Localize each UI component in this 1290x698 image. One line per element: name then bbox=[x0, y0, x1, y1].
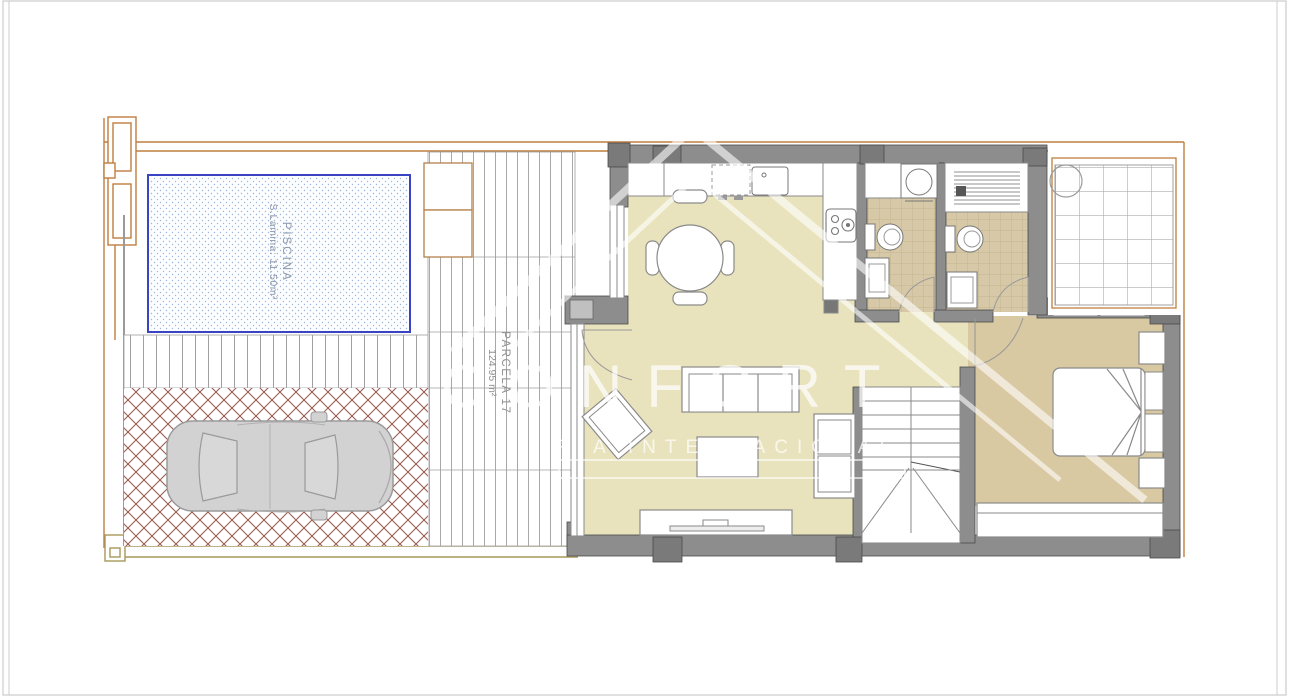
car bbox=[167, 412, 393, 520]
floor-plan-page: PISCINA S.Lamina: 11.50m² PARCELA 17 124… bbox=[0, 0, 1290, 698]
watermark-tagline: RIA INTERNACIONAL bbox=[556, 437, 899, 459]
pool-label: PISCINA S.Lamina: 11.50m² bbox=[265, 167, 293, 337]
floor-plan-drawing bbox=[0, 0, 1290, 698]
gate bbox=[104, 117, 136, 245]
toilet2 bbox=[945, 226, 955, 252]
nightstand-bottom bbox=[1139, 458, 1165, 488]
terrace bbox=[1048, 152, 1183, 315]
toilet1 bbox=[865, 224, 875, 250]
wardrobe bbox=[977, 503, 1163, 537]
tv-unit bbox=[640, 510, 792, 535]
pool-deck bbox=[124, 335, 428, 388]
watermark-box bbox=[558, 459, 906, 479]
entry-meter-box bbox=[570, 300, 593, 319]
pool-name: PISCINA bbox=[278, 167, 292, 337]
pool-area: S.Lamina: 11.50m² bbox=[265, 167, 278, 337]
nightstand-top bbox=[1139, 332, 1165, 364]
watermark-brand: CONFORT bbox=[441, 352, 961, 421]
